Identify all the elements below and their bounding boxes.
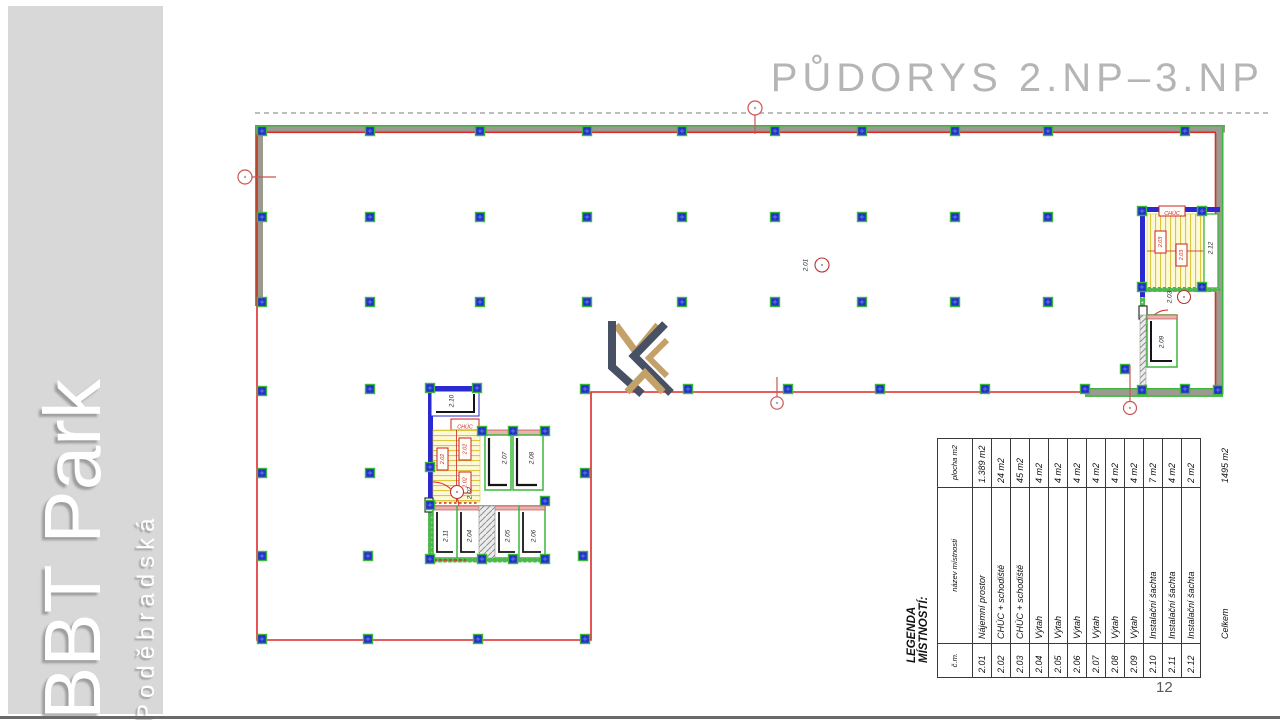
legend-cell-area: 4 m2 [1129, 439, 1139, 487]
legend-cell-name: Výtah [1091, 488, 1101, 643]
legend-cell-area: 7 m2 [1148, 439, 1158, 487]
room-label-2.06: 2.06 [531, 529, 538, 543]
legend-cell-number: 2.03 [1015, 644, 1025, 677]
stair-box-label-left-1: 2.02 [440, 454, 446, 466]
legend-header-column: plocha m2 název místnosti č.m. [938, 439, 972, 677]
legend-total-name: Celkem [1220, 487, 1230, 643]
legend-row: 4 m2 Výtah 2.09 [1124, 439, 1143, 677]
room-label-2.04: 2.04 [467, 529, 474, 543]
legend-row: 4 m2 Výtah 2.07 [1086, 439, 1105, 677]
legend-cell-number: 2.01 [977, 644, 987, 677]
legend-cell-number: 2.05 [1053, 644, 1063, 677]
legend-row: 7 m2 Instalační šachta 2.10 [1143, 439, 1162, 677]
legend-header-name: název místnosti [950, 539, 960, 592]
legend-cell-number: 2.09 [1129, 644, 1139, 677]
legend-row: 1.389 m2 Nájemní prostor 2.01 [972, 439, 991, 677]
legend-cell-area: 4 m2 [1091, 439, 1101, 487]
legend-cell-number: 2.04 [1034, 644, 1044, 677]
legend-header-number: č.m. [950, 653, 960, 667]
legend-cell-name: Výtah [1129, 488, 1139, 643]
legend-row: 2 m2 Instalační šachta 2.12 [1181, 439, 1200, 677]
legend-cell-number: 2.12 [1186, 644, 1196, 677]
legend-cell-name: Instalační šachta [1148, 488, 1158, 643]
legend-cell-area: 45 m2 [1015, 439, 1025, 487]
legend-row: 4 m2 Výtah 2.05 [1048, 439, 1067, 677]
legend-cell-area: 4 m2 [1034, 439, 1044, 487]
room-label-2.08: 2.08 [529, 451, 536, 465]
legend-table: plocha m2 název místnosti č.m. 1.389 m2 … [937, 438, 1249, 678]
legend-row: 4 m2 Výtah 2.08 [1105, 439, 1124, 677]
room-label-2.09: 2.09 [1159, 335, 1166, 349]
legend-cell-name: Instalační šachta [1167, 488, 1177, 643]
legend-cell-name: CHÚC + schodiště [996, 488, 1006, 643]
stair-box-label-left-3: 2.02 [462, 477, 468, 489]
slide-bottom-border [0, 716, 1280, 719]
legend-cell-name: Výtah [1053, 488, 1063, 643]
room-label-2.01: 2.01 [803, 258, 810, 272]
legend-total-column: 1495 m2 Celkem [1201, 438, 1249, 678]
legend-row: 4 m2 Výtah 2.06 [1067, 439, 1086, 677]
legend-row: 4 m2 Výtah 2.04 [1029, 439, 1048, 677]
k-logo [612, 321, 671, 394]
stair-box-label-right-2: 2.03 [1179, 250, 1185, 262]
legend-cell-name: Instalační šachta [1186, 488, 1196, 643]
legend-cell-name: CHÚC + schodiště [1015, 488, 1025, 643]
legend-cell-number: 2.06 [1072, 644, 1082, 677]
legend-row: 24 m2 CHÚC + schodiště 2.02 [991, 439, 1010, 677]
legend-cell-area: 1.389 m2 [977, 439, 987, 487]
legend-cell-name: Výtah [1072, 488, 1082, 643]
legend-cell-name: Výtah [1110, 488, 1120, 643]
legend-row: 4 m2 Instalační šachta 2.11 [1162, 439, 1181, 677]
room-label-2.05: 2.05 [505, 529, 512, 543]
stair-box-label-chuc-right: CHÚC [1164, 210, 1180, 217]
room-label-2.11: 2.11 [443, 530, 450, 543]
legend-cell-number: 2.10 [1148, 644, 1158, 677]
stair-box-label-left-2: 2.02 [462, 444, 468, 456]
legend-cell-number: 2.11 [1167, 644, 1177, 677]
legend-table-grid: plocha m2 název místnosti č.m. 1.389 m2 … [937, 438, 1201, 678]
room-label-2.07: 2.07 [502, 451, 509, 465]
legend-cell-area: 4 m2 [1167, 439, 1177, 487]
legend-header-area: plocha m2 [950, 445, 960, 480]
room-label-2.10: 2.10 [449, 394, 456, 408]
legend-cell-name: Nájemní prostor [977, 488, 987, 643]
axis-markers [238, 101, 1137, 415]
legend-cell-area: 4 m2 [1110, 439, 1120, 487]
legend-cell-area: 2 m2 [1186, 439, 1196, 487]
legend-cell-area: 24 m2 [996, 439, 1006, 487]
legend-row: 45 m2 CHÚC + schodiště 2.03 [1010, 439, 1029, 677]
legend-cell-area: 4 m2 [1072, 439, 1082, 487]
legend-cell-number: 2.07 [1091, 644, 1101, 677]
page-number: 12 [1156, 679, 1173, 696]
exterior-walls [255, 125, 1225, 397]
stair-box-label-right-1: 2.03 [1158, 237, 1164, 249]
room-label-2.03: 2.03 [1167, 290, 1174, 304]
legend-cell-name: Výtah [1034, 488, 1044, 643]
legend-title: LEGENDA MÍSTNOSTÍ: [906, 551, 930, 663]
slide: BBT Park Poděbradská PŮDORYS 2.NP–3.NP [0, 0, 1280, 720]
stair-box-label-chuc-left: CHÚC [457, 423, 473, 430]
legend-total-area: 1495 m2 [1220, 438, 1230, 487]
legend-cell-number: 2.08 [1110, 644, 1120, 677]
legend-cell-area: 4 m2 [1053, 439, 1063, 487]
room-label-2.12: 2.12 [1208, 241, 1215, 255]
legend-cell-number: 2.02 [996, 644, 1006, 677]
